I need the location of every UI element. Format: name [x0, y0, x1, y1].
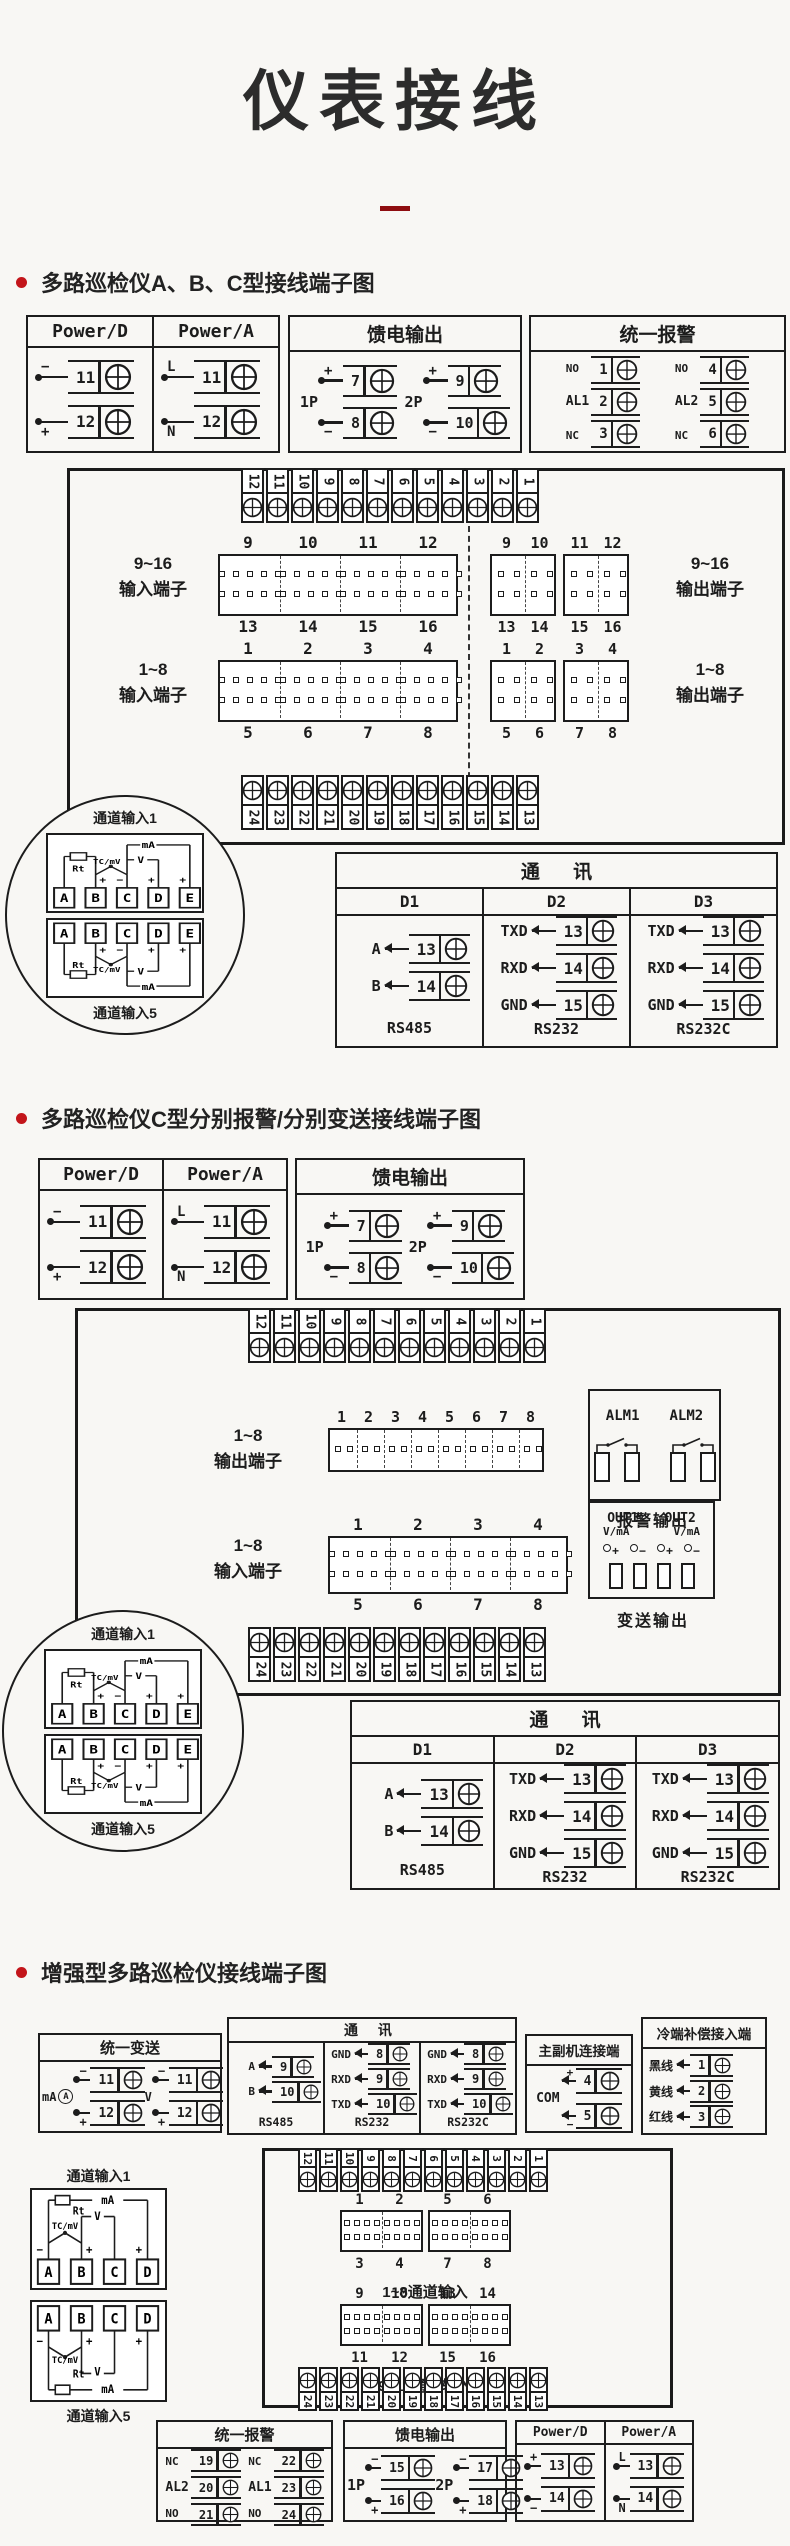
screw-terminal-icon [743, 1804, 767, 1828]
comm-column-header: D1 [352, 1737, 493, 1764]
terminal-clamp: 5 [700, 388, 749, 416]
terminal-clamp: 10 [452, 1252, 515, 1284]
input-9-16-block: 910111213141516 [218, 533, 458, 637]
cold-junction-box: 冷端补偿接入端黑线1黄线2红线3 [641, 2017, 767, 2135]
terminal-clamp: 8 [464, 2043, 506, 2065]
channel-detail-callout: 通道输入1ABCDERtTC/mVVmA+−++ABCDERtTC/mVVmA+… [5, 795, 245, 1035]
contact-label: NC [165, 2455, 188, 2468]
power-box: Power/D−11+12Power/AL11N12 [38, 1158, 288, 1300]
screw-terminal-icon [446, 2372, 463, 2389]
alarm-group: NOAL1NC123 [566, 356, 640, 448]
screw-terminal-icon [349, 1632, 370, 1653]
screw-terminal-icon [341, 2171, 358, 2188]
comm-protocol-caption: RS232C [447, 2115, 489, 2133]
output-9-16-block-a: 9101314 [490, 533, 556, 637]
power-col-title: Power/A [154, 317, 278, 348]
svg-text:−: − [37, 2335, 44, 2348]
svg-text:A: A [58, 1708, 67, 1721]
screw-terminal-icon [616, 391, 638, 413]
label-line: 输入端子 [83, 577, 223, 603]
screw-terminal-icon [530, 2171, 547, 2188]
comm-protocol-caption: RS232 [542, 1868, 587, 1895]
terminal-row: +12 [74, 2100, 144, 2126]
svg-text:D: D [152, 1743, 161, 1756]
block-numbers: 1516 [428, 2348, 511, 2366]
svg-text:D: D [143, 2264, 151, 2280]
comm-column-header: D3 [631, 889, 776, 916]
label-line: 9~16 [640, 551, 780, 577]
screw-terminal-icon [616, 359, 638, 381]
screw-terminal-icon [116, 1253, 144, 1281]
comm-protocol-caption: RS232C [681, 1868, 735, 1895]
svg-text:V: V [135, 1671, 142, 1681]
out-label: OUT1 [607, 1511, 638, 1526]
svg-text:C: C [121, 1743, 130, 1756]
top-terminal-strip: 121110987654321 [298, 2148, 550, 2192]
relay-switch-icon [665, 1436, 721, 1452]
comm-box-1: 通 讯D1A13B14RS485D2TXD13RXD14GND15RS232D3… [335, 852, 778, 1048]
block-numbers: 1234 [328, 1516, 568, 1534]
block-numbers: 12 [490, 640, 556, 658]
terminal-clamp: 20 [191, 2476, 241, 2499]
terminal-clamp: 23 [274, 2476, 324, 2499]
svg-text:E: E [184, 1708, 193, 1721]
svg-text:E: E [186, 927, 195, 940]
screw-terminal-icon [240, 1208, 268, 1236]
svg-text:−: − [117, 875, 124, 885]
comm-column: A9B10RS485 [229, 2043, 323, 2133]
screw-terminal-icon [369, 368, 395, 394]
comm-column: D2TXD13RXD14GND15RS232 [493, 1737, 636, 1888]
signal-row: A13 [349, 934, 471, 964]
svg-text:+: + [177, 1761, 184, 1771]
terminal-clamp: 9 [272, 2056, 314, 2078]
output-9-16-block-b: 11121516 [563, 533, 629, 637]
output-1-8-label: 1~8输出端子 [640, 657, 780, 710]
alarm-box-frame: 统一报警NCAL2NO192021NCAL1NO222324 [156, 2420, 333, 2522]
svg-text:C: C [110, 2264, 118, 2280]
svg-text:B: B [91, 927, 100, 940]
screw-terminal-icon [230, 408, 258, 436]
svg-text:D: D [154, 927, 163, 940]
svg-text:+: + [99, 945, 106, 955]
screw-terminal-icon [662, 2456, 682, 2476]
screw-terminal-icon [417, 497, 438, 518]
svg-text:V: V [137, 855, 144, 865]
block-numbers: 34 [340, 2254, 423, 2272]
feed-box-title: 馈电输出 [290, 317, 520, 352]
terminal-clamp: 3 [690, 2105, 733, 2128]
group-label: mAA [42, 2089, 73, 2104]
terminal-row: −15 [366, 2455, 435, 2481]
svg-text:C: C [123, 927, 132, 940]
svg-text:Rt: Rt [72, 960, 84, 970]
feed-box-frame: 馈电输出1P+7−82P+9−10 [288, 315, 522, 453]
screw-terminal-icon [449, 1632, 470, 1653]
master-slave-link-box: 主副机连接端COM+4−5 [525, 2034, 633, 2133]
comm-box-frame: 通 讯D1A13B14RS485D2TXD13RXD14GND15RS232D3… [335, 852, 778, 1048]
screw-terminal-icon [123, 2103, 143, 2123]
terminal-clamp: 13 [421, 1779, 483, 1809]
screw-terminal-icon [573, 2489, 593, 2509]
terminal-clamp: 19 [191, 2449, 241, 2472]
alarm-label: AL2 [675, 394, 698, 409]
svg-text:Rt: Rt [73, 2206, 85, 2217]
svg-text:mA: mA [142, 841, 155, 851]
transmit-output-caption: 变送输出 [578, 1607, 728, 1631]
svg-text:mA: mA [142, 983, 155, 993]
screw-terminal-icon [591, 993, 615, 1017]
signal-row: TXD13 [496, 916, 618, 946]
signal-row: RXD14 [643, 953, 765, 983]
svg-text:−: − [115, 1691, 122, 1701]
terminal-clamp: 13 [541, 2453, 595, 2479]
signal-row: A9 [231, 2056, 321, 2078]
channel-bottom-label: 通道输入5 [91, 1819, 155, 1839]
terminal-clamp: 2 [591, 388, 640, 416]
terminal-row: +7 [319, 365, 397, 397]
channel-input1-label: 通道输入1 [30, 2166, 167, 2186]
comm-column: D1A13B14RS485 [337, 889, 482, 1046]
comm-column: GND8RXD9TXD10RS232 [323, 2043, 419, 2133]
svg-text:mA: mA [101, 2194, 114, 2207]
feed-output-box: 馈电输出1P+7−82P+9−10 [295, 1158, 525, 1300]
screw-terminal-icon [267, 780, 288, 801]
terminal-clamp: 13 [630, 2453, 684, 2479]
screw-terminal-icon [725, 359, 747, 381]
block-numbers: 12345678 [328, 1408, 544, 1426]
group-label: 2P [435, 2476, 453, 2494]
comm-protocol-caption: RS232 [534, 1020, 579, 1047]
screw-terminal-icon [517, 780, 538, 801]
svg-text:C: C [123, 892, 132, 905]
screw-terminal-icon [299, 2171, 316, 2188]
signal-row: TXD10 [423, 2093, 513, 2115]
terminal-clamp: 15 [564, 1838, 626, 1868]
svg-text:+: + [86, 2335, 93, 2348]
svg-text:+: + [146, 1691, 153, 1701]
alarm-label: AL1 [248, 2480, 271, 2495]
terminal-clamp: 7 [343, 365, 397, 397]
output-pin: + [603, 1544, 619, 1558]
link-box-frame: 主副机连接端COM+4−5 [525, 2034, 633, 2133]
signal-row: B14 [361, 1816, 483, 1846]
screw-terminal-icon [530, 2372, 547, 2389]
comm-column-header: D1 [337, 889, 482, 916]
screw-terminal-icon [392, 497, 413, 518]
screw-terminal-icon [392, 2046, 408, 2062]
screw-terminal-icon [222, 2452, 239, 2469]
signal-row: GND15 [647, 1838, 769, 1868]
terminal-strip: 121110987654321 [241, 468, 541, 523]
terminal-clamp: 9 [368, 2068, 410, 2090]
screw-terminal-icon [467, 2372, 484, 2389]
comm-column: D3TXD13RXD14GND15RS232C [629, 889, 776, 1046]
signal-row: GND8 [423, 2043, 513, 2065]
terminal-clamp: 22 [274, 2449, 324, 2472]
unified-alarm-box: 统一报警NOAL1NC123NOAL2NC456 [529, 315, 786, 453]
screw-terminal-icon [399, 1632, 420, 1653]
screw-terminal-icon [495, 2096, 511, 2112]
signal-row: 黑线1 [647, 2054, 761, 2077]
label-line: 输出端子 [178, 1449, 318, 1475]
svg-text:+: + [148, 945, 155, 955]
power-box-frame: Power/D−11+12Power/AL11N12 [26, 315, 280, 453]
svg-text:mA: mA [140, 1799, 153, 1809]
feed-box-frame: 馈电输出1P+7−82P+9−10 [295, 1158, 525, 1300]
comm-column-header: D2 [484, 889, 629, 916]
terminal-row: +7 [325, 1210, 403, 1242]
screw-terminal-icon [296, 2059, 312, 2075]
svg-text:mA: mA [101, 2383, 114, 2396]
screw-terminal-icon [303, 2084, 319, 2100]
block-numbers: 1516 [563, 618, 629, 636]
comm-column: D2TXD13RXD14GND15RS232 [482, 889, 629, 1046]
channel-wiring-diagram: ABCDERtTC/mVVmA+−++ [46, 1651, 200, 1727]
signal-row: GND8 [327, 2043, 417, 2065]
terminal-row: −11 [48, 1205, 158, 1239]
terminal-row: −11 [36, 360, 148, 394]
channel-wiring-diagram: ABCDERtTC/mVVmA+−++ [48, 835, 202, 911]
screw-terminal-icon [600, 2106, 620, 2126]
screw-terminal-icon [305, 2506, 322, 2523]
terminal-row: +12 [36, 405, 148, 439]
power-box-frame: Power/D+13−14Power/AL13N14 [515, 2420, 694, 2522]
power-col-title: Power/D [28, 317, 152, 348]
svg-text:V: V [137, 967, 144, 977]
terminal-clamp: 11 [80, 1205, 146, 1239]
alm-label: ALM2 [670, 1408, 704, 1424]
terminal-row: −11 [74, 2067, 144, 2093]
terminal-row: −17 [454, 2455, 523, 2481]
terminal-clamp: 10 [464, 2093, 513, 2115]
input-1-8-label: 1~8输入端子 [83, 657, 223, 710]
terminal-clamp: 14 [556, 953, 618, 983]
connector-block [563, 660, 629, 722]
meter-icon: A [58, 2089, 73, 2104]
screw-terminal-icon [392, 780, 413, 801]
screw-terminal-icon [425, 2171, 442, 2188]
signal-row: TXD13 [647, 1764, 769, 1794]
signal-row: RXD9 [327, 2068, 417, 2090]
block-numbers: 34 [563, 640, 629, 658]
svg-text:Rt: Rt [70, 1680, 82, 1690]
screw-terminal-icon [499, 1337, 520, 1358]
comm-column-header: D2 [495, 1737, 636, 1764]
channel-input-callout-2: 通道输入1ABCDERtTC/mVVmA+−++ABCDERtTC/mVVmA+… [2, 1610, 244, 1852]
screw-terminal-icon [299, 1337, 320, 1358]
alarm-group: NCAL1NO222324 [248, 2449, 323, 2526]
output-9-16-label: 9~16输出端子 [640, 551, 780, 604]
page: 仪表接线 多路巡检仪A、B、C型接线端子图 Power/D−11+12Power… [0, 0, 790, 2546]
connector-block [563, 554, 629, 616]
svg-text:TC/mV: TC/mV [91, 1780, 118, 1789]
screw-terminal-icon [444, 937, 468, 961]
terminal-clamp: 1 [690, 2054, 733, 2077]
label-line: 输出端子 [640, 683, 780, 709]
power-box-3: Power/D+13−14Power/AL13N14 [515, 2420, 694, 2522]
power-col-title: Power/A [606, 2422, 693, 2445]
group-label: 2P [409, 1238, 427, 1256]
top-terminal-strip: 121110987654321 [248, 1308, 548, 1363]
signal-row: B10 [231, 2081, 321, 2103]
label-line: 1~8 [640, 657, 780, 683]
terminal-strip: 242322212019181716151413 [241, 775, 541, 830]
terminal-clamp: 13 [409, 934, 471, 964]
terminal-clamp: 4 [700, 356, 749, 384]
screw-terminal-icon [274, 1632, 295, 1653]
terminal-clamp: 8 [343, 407, 397, 439]
svg-text:E: E [184, 1743, 193, 1756]
terminal-clamp: 4 [576, 2068, 622, 2094]
svg-text:+: + [136, 2243, 143, 2256]
svg-text:+: + [136, 2335, 143, 2348]
screw-terminal-icon [374, 1337, 395, 1358]
feed-output-box: 馈电输出1P+7−82P+9−10 [288, 315, 522, 453]
terminal-clamp: 14 [707, 1801, 769, 1831]
screw-terminal-icon [242, 780, 263, 801]
feed-box-title: 馈电输出 [297, 1160, 523, 1195]
screw-terminal-icon [662, 2489, 682, 2509]
terminal-row: +4 [562, 2068, 622, 2094]
screw-terminal-icon [292, 780, 313, 801]
terminal-row: −10 [428, 1252, 515, 1284]
output-1-8-block-a: 1256 [490, 639, 556, 743]
svg-text:A: A [44, 2264, 53, 2280]
screw-terminal-icon [399, 2096, 415, 2112]
screw-terminal-icon [467, 497, 488, 518]
screw-terminal-icon [222, 2479, 239, 2496]
block-numbers: 13141516 [218, 618, 458, 636]
terminal-clamp: 13 [556, 916, 618, 946]
screw-terminal-icon [362, 2372, 379, 2389]
svg-text:−: − [37, 2243, 44, 2256]
cold-box-title: 冷端补偿接入端 [643, 2019, 765, 2049]
input-1-8-label: 1~8输入端子 [178, 1533, 318, 1586]
screw-terminal-icon [743, 1767, 767, 1791]
channel-wiring-diagram: ABCDRtTC/mVVmA−++ [32, 2302, 165, 2400]
screw-terminal-icon [374, 1632, 395, 1653]
terminal-clamp: 14 [421, 1816, 483, 1846]
terminal-row: −5 [562, 2103, 622, 2129]
feed-box-frame: 馈电输出1P−15+162P−17+18 [343, 2420, 507, 2522]
signal-row: 红线3 [647, 2105, 761, 2128]
screw-terminal-icon [417, 780, 438, 801]
signal-row: GND15 [643, 990, 765, 1020]
screw-terminal-icon [362, 2171, 379, 2188]
unified-transmit-box: 统一变送mAA−11+12V−11+12 [38, 2033, 222, 2133]
bullet-icon [16, 1113, 27, 1124]
screw-terminal-icon [482, 410, 508, 436]
group-label: 1P [306, 1238, 324, 1256]
screw-terminal-icon [444, 974, 468, 998]
bullet-icon [16, 277, 27, 288]
terminal-strip: 242322212019181716151413 [248, 1627, 548, 1682]
power-box-frame: Power/D−11+12Power/AL11N12 [38, 1158, 288, 1300]
screw-terminal-icon [317, 780, 338, 801]
link-box-title: 主副机连接端 [527, 2036, 631, 2066]
screw-terminal-icon [317, 497, 338, 518]
screw-terminal-icon [367, 780, 388, 801]
screw-terminal-icon [477, 1213, 503, 1239]
terminal-row: −10 [424, 407, 511, 439]
svg-text:A: A [44, 2311, 53, 2327]
terminal-clamp: 13 [703, 916, 765, 946]
alarm-box-title: 统一报警 [531, 317, 784, 352]
screw-terminal-icon [242, 497, 263, 518]
channel-wiring-diagram: ABCDRtTC/mVVmA−++ [32, 2190, 165, 2288]
terminal-clamp: 14 [409, 971, 471, 1001]
svg-text:A: A [58, 1743, 67, 1756]
screw-terminal-icon [509, 2171, 526, 2188]
svg-text:+: + [86, 2243, 93, 2256]
out-sub-label: V/mA [603, 1525, 630, 1538]
screw-terminal-icon [467, 780, 488, 801]
svg-text:E: E [186, 892, 195, 905]
terminal-clamp: 16 [381, 2488, 435, 2514]
terminal-row: −8 [325, 1252, 403, 1284]
block-numbers: 1314 [490, 618, 556, 636]
block-numbers: 5678 [328, 1596, 568, 1614]
screw-terminal-icon [305, 2452, 322, 2469]
contact-label: NC [566, 429, 589, 442]
screw-terminal-icon [341, 2372, 358, 2389]
terminal-clamp: 11 [204, 1205, 270, 1239]
terminal-clamp: 14 [630, 2486, 684, 2512]
block-numbers: 5678 [218, 724, 458, 742]
svg-text:B: B [91, 892, 100, 905]
screw-terminal-icon [591, 956, 615, 980]
channel-top-label: 通道输入1 [93, 808, 157, 828]
screw-terminal-icon [738, 993, 762, 1017]
screw-terminal-icon [457, 1782, 481, 1806]
svg-text:TC/mV: TC/mV [93, 856, 120, 865]
signal-row: GND15 [504, 1838, 626, 1868]
unified-alarm-box-3: 统一报警NCAL2NO192021NCAL1NO222324 [156, 2420, 333, 2522]
block-numbers: 910 [490, 534, 556, 552]
svg-text:B: B [89, 1743, 98, 1756]
screw-terminal-icon [292, 497, 313, 518]
signal-row: GND15 [496, 990, 618, 1020]
screw-terminal-icon [449, 1337, 470, 1358]
screw-terminal-icon [488, 2071, 504, 2087]
signal-row: 黄线2 [647, 2080, 761, 2103]
screw-terminal-icon [591, 919, 615, 943]
connector-block [428, 2304, 511, 2346]
terminal-row: +12 [153, 2100, 223, 2126]
screw-terminal-icon [240, 1253, 268, 1281]
terminal-clamp: 5 [576, 2103, 622, 2129]
signal-row: RXD14 [647, 1801, 769, 1831]
screw-terminal-icon [488, 2171, 505, 2188]
screw-terminal-icon [473, 368, 499, 394]
screw-terminal-icon [404, 2372, 421, 2389]
feed-output-box-3: 馈电输出1P−15+162P−17+18 [343, 2420, 507, 2522]
svg-text:TC/mV: TC/mV [52, 2356, 79, 2366]
comm-title: 通 讯 [229, 2019, 515, 2043]
terminal-row: +16 [366, 2488, 435, 2514]
section3-heading: 增强型多路巡检仪接线端子图 [41, 1956, 327, 1988]
page-title: 仪表接线 [0, 48, 790, 144]
terminal-clamp: 6 [700, 420, 749, 448]
terminal-clamp: 12 [194, 405, 260, 439]
input-1-8-block: 12345678 [328, 1515, 568, 1615]
screw-terminal-icon [201, 2070, 221, 2090]
out-box-frame: OUT1OUT2V/mAV/mA+−+− [588, 1501, 715, 1599]
contact-label: NO [566, 362, 589, 375]
connector-block [218, 660, 458, 722]
screw-terminal-icon [616, 423, 638, 445]
